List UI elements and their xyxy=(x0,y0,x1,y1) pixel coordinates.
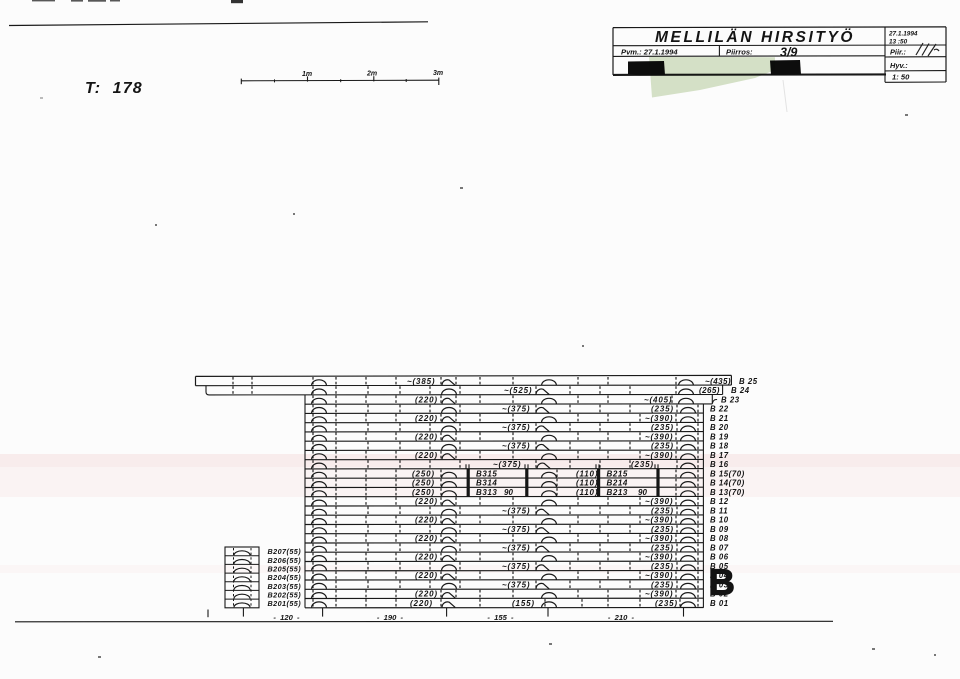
svg-text:B 13(70): B 13(70) xyxy=(710,488,745,497)
svg-text:(250): (250) xyxy=(412,479,435,488)
svg-text:(220): (220) xyxy=(415,497,438,506)
svg-text:~(405): ~(405) xyxy=(644,395,672,404)
svg-text:1m: 1m xyxy=(302,71,312,78)
svg-text:(110): (110) xyxy=(576,488,598,497)
svg-text:(220): (220) xyxy=(415,451,438,460)
svg-text:~(375): ~(375) xyxy=(502,423,530,432)
svg-text:~(390): ~(390) xyxy=(645,590,673,599)
svg-text:B 08: B 08 xyxy=(710,534,729,543)
svg-text:2m: 2m xyxy=(366,71,377,78)
svg-text:~(390): ~(390) xyxy=(645,497,673,506)
svg-text:(220): (220) xyxy=(415,553,438,562)
svg-text:(220): (220) xyxy=(415,590,438,599)
svg-text:90: 90 xyxy=(504,488,513,497)
svg-text:~(375): ~(375) xyxy=(502,543,530,552)
svg-text:(220): (220) xyxy=(415,395,438,404)
svg-text:(220): (220) xyxy=(415,571,438,580)
svg-text:B214: B214 xyxy=(607,479,628,488)
svg-text:~(375): ~(375) xyxy=(502,405,530,414)
svg-text:(235): (235) xyxy=(651,581,674,590)
svg-text:B 21: B 21 xyxy=(710,414,729,423)
svg-text:B206(55): B206(55) xyxy=(268,556,302,565)
svg-text:B 23: B 23 xyxy=(721,395,740,404)
svg-text:B202(55): B202(55) xyxy=(268,591,302,600)
svg-text:(235): (235) xyxy=(651,525,674,534)
svg-text:MELLILÄN HIRSITYÖ: MELLILÄN HIRSITYÖ xyxy=(655,29,855,46)
svg-text:1: 50: 1: 50 xyxy=(892,73,910,82)
svg-text:T: 178: T: 178 xyxy=(85,80,143,97)
svg-text:(220): (220) xyxy=(415,534,438,543)
svg-text:B: B xyxy=(709,562,735,603)
svg-text:~(385): ~(385) xyxy=(407,377,435,386)
svg-text:B 22: B 22 xyxy=(710,405,729,414)
svg-text:(220): (220) xyxy=(415,414,438,423)
svg-text:~(375): ~(375) xyxy=(502,562,530,571)
svg-text:B201(55): B201(55) xyxy=(268,599,302,608)
svg-text:(235): (235) xyxy=(655,599,678,608)
svg-text:(250): (250) xyxy=(412,488,435,497)
svg-text:~(375): ~(375) xyxy=(502,506,530,515)
svg-text:~(390): ~(390) xyxy=(645,451,673,460)
svg-text:Piirros:: Piirros: xyxy=(726,47,753,56)
svg-text:B203(55): B203(55) xyxy=(268,582,302,591)
svg-text:(250): (250) xyxy=(412,469,435,478)
svg-text:(235): (235) xyxy=(651,442,674,451)
svg-text:B213: B213 xyxy=(607,488,628,497)
svg-text:~(390): ~(390) xyxy=(645,414,673,423)
svg-text:(110): (110) xyxy=(576,469,598,478)
svg-text:~(375): ~(375) xyxy=(502,442,530,451)
svg-text:(220): (220) xyxy=(415,432,438,441)
svg-text:~(390): ~(390) xyxy=(645,553,673,562)
svg-text:B 14(70): B 14(70) xyxy=(710,479,745,488)
svg-text:B 15(70): B 15(70) xyxy=(710,469,745,478)
svg-text:(235): (235) xyxy=(631,460,654,469)
svg-text:(235): (235) xyxy=(651,543,674,552)
svg-text:3/9: 3/9 xyxy=(780,46,797,60)
svg-text:B 19: B 19 xyxy=(710,432,729,441)
svg-text:- 155 -: - 155 - xyxy=(487,613,514,622)
svg-text:~(525): ~(525) xyxy=(504,386,532,395)
svg-text:B 25: B 25 xyxy=(739,377,758,386)
svg-text:- 210 -: - 210 - xyxy=(608,613,635,622)
svg-text:~(375): ~(375) xyxy=(502,525,530,534)
svg-text:(235): (235) xyxy=(651,423,674,432)
svg-text:B215: B215 xyxy=(607,469,628,478)
svg-text:B 09: B 09 xyxy=(710,525,729,534)
svg-text:B207(55): B207(55) xyxy=(268,547,302,556)
svg-text:(265): (265) xyxy=(699,386,720,395)
svg-text:B315: B315 xyxy=(476,469,497,478)
svg-text:(155): (155) xyxy=(512,599,535,608)
svg-text:B313: B313 xyxy=(476,488,497,497)
svg-text:- 120 -: - 120 - xyxy=(273,613,300,622)
svg-text:~(375): ~(375) xyxy=(493,460,521,469)
svg-text:B 18: B 18 xyxy=(710,442,729,451)
svg-text:(235): (235) xyxy=(651,562,674,571)
svg-text:B 07: B 07 xyxy=(710,543,729,552)
svg-text:Hyv.:: Hyv.: xyxy=(890,61,908,70)
svg-text:B 06: B 06 xyxy=(710,553,729,562)
svg-text:B 16: B 16 xyxy=(710,460,729,469)
svg-text:B 10: B 10 xyxy=(710,516,729,525)
svg-text:(110): (110) xyxy=(576,479,598,488)
svg-text:B 17: B 17 xyxy=(710,451,729,460)
svg-text:(220): (220) xyxy=(410,599,433,608)
svg-text:B314: B314 xyxy=(476,479,497,488)
svg-text:B 12: B 12 xyxy=(710,497,729,506)
svg-text:~(390): ~(390) xyxy=(645,534,673,543)
svg-text:B204(55): B204(55) xyxy=(268,573,302,582)
svg-text:27.1.1994: 27.1.1994 xyxy=(888,30,918,37)
svg-text:- 190 -: - 190 - xyxy=(377,613,404,622)
svg-text:B 24: B 24 xyxy=(731,386,750,395)
svg-text:(235): (235) xyxy=(651,405,674,414)
svg-text:~(375): ~(375) xyxy=(502,581,530,590)
svg-text:Piir.:: Piir.: xyxy=(890,48,907,57)
svg-text:~(390): ~(390) xyxy=(645,571,673,580)
svg-text:90: 90 xyxy=(638,488,647,497)
svg-text:~(390): ~(390) xyxy=(645,432,673,441)
svg-text:3m: 3m xyxy=(433,70,443,77)
svg-text:(220): (220) xyxy=(415,516,438,525)
svg-text:B 11: B 11 xyxy=(710,506,728,515)
svg-text:B 20: B 20 xyxy=(710,423,729,432)
svg-text:(235): (235) xyxy=(651,506,674,515)
svg-text:~(435): ~(435) xyxy=(705,377,731,386)
svg-text:Pvm.: 27.1.1994: Pvm.: 27.1.1994 xyxy=(621,47,678,56)
svg-text:13 :50: 13 :50 xyxy=(889,39,908,46)
svg-text:~(390): ~(390) xyxy=(645,516,673,525)
